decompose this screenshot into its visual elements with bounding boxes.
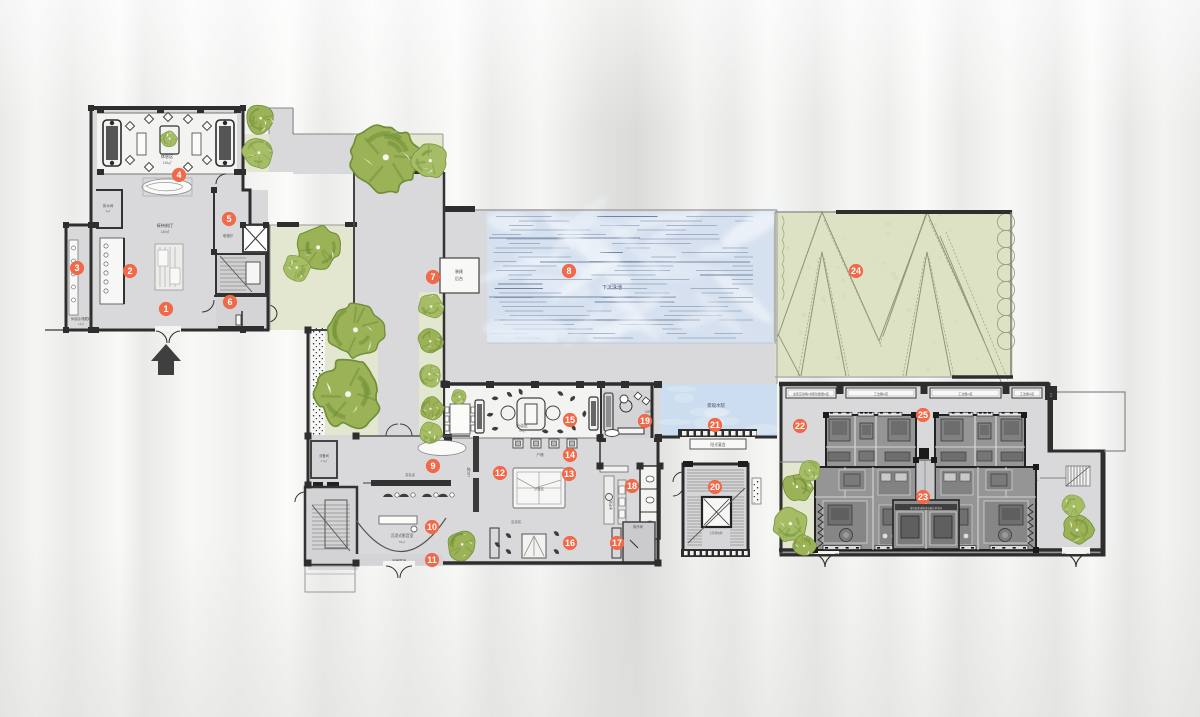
- svg-text:23: 23: [918, 492, 928, 502]
- svg-text:设备间: 设备间: [319, 453, 329, 458]
- svg-text:工: 工: [1050, 394, 1053, 397]
- svg-text:8: 8: [566, 266, 571, 276]
- svg-text:10: 10: [427, 522, 437, 532]
- svg-text:9㎡: 9㎡: [106, 208, 111, 213]
- svg-text:阳光宴会: 阳光宴会: [710, 442, 725, 447]
- svg-text:12: 12: [495, 468, 505, 478]
- svg-text:17: 17: [612, 538, 622, 548]
- svg-text:LED屏: LED屏: [467, 466, 471, 476]
- svg-text:20: 20: [710, 482, 720, 492]
- svg-text:下沉泳池: 下沉泳池: [602, 284, 622, 291]
- svg-text:接待前厅: 接待前厅: [157, 222, 174, 229]
- svg-text:水吧区: 水吧区: [608, 499, 613, 510]
- svg-text:后台: 后台: [455, 275, 463, 281]
- svg-text:宴会桌: 宴会桌: [405, 472, 415, 477]
- svg-text:22: 22: [795, 421, 805, 431]
- svg-text:休息区/储藏间: 休息区/储藏间: [71, 316, 91, 321]
- svg-text:2: 2: [127, 266, 132, 276]
- svg-text:电梯厅: 电梯厅: [223, 233, 234, 238]
- svg-text:3: 3: [74, 263, 79, 273]
- svg-text:9: 9: [430, 461, 435, 471]
- svg-text:24: 24: [851, 266, 861, 276]
- svg-text:1: 1: [163, 304, 168, 314]
- svg-text:4.5㎡: 4.5㎡: [321, 459, 328, 463]
- svg-text:沉浸式影音室: 沉浸式影音室: [391, 533, 414, 538]
- svg-text:洽谈区: 洽谈区: [511, 519, 522, 524]
- svg-text:工法展w区: 工法展w区: [874, 391, 888, 396]
- svg-text:16: 16: [565, 538, 575, 548]
- svg-text:115㎡: 115㎡: [163, 160, 172, 165]
- svg-text:55㎡: 55㎡: [399, 539, 405, 544]
- svg-text:户槽: 户槽: [536, 452, 544, 457]
- svg-text:25: 25: [918, 410, 928, 420]
- svg-text:休息区: 休息区: [161, 153, 174, 160]
- svg-text:7: 7: [430, 272, 435, 282]
- svg-text:无障碍电梯: 无障碍电梯: [710, 531, 723, 535]
- svg-text:工法展w区: 工法展w区: [1020, 391, 1034, 396]
- svg-text:140㎡: 140㎡: [161, 229, 170, 234]
- svg-text:洽谈区: 洽谈区: [516, 422, 528, 428]
- svg-text:室内回游动线/多功能分享空间: 室内回游动线/多功能分享空间: [910, 506, 942, 510]
- svg-text:沙盘区: 沙盘区: [534, 486, 545, 491]
- svg-text:装裱: 装裱: [455, 268, 463, 274]
- svg-text:6: 6: [227, 297, 232, 307]
- svg-text:景观水院: 景观水院: [707, 402, 725, 409]
- svg-text:工法展w区: 工法展w区: [958, 391, 972, 396]
- svg-text:78㎡: 78㎡: [519, 428, 525, 433]
- svg-text:茶水间: 茶水间: [103, 203, 114, 208]
- svg-text:13: 13: [564, 469, 574, 479]
- svg-text:全民互动等/书吧功能展w区: 全民互动等/书吧功能展w区: [793, 391, 829, 396]
- svg-text:21: 21: [710, 420, 720, 430]
- svg-text:19: 19: [640, 416, 650, 426]
- svg-text:操作间: 操作间: [633, 524, 644, 529]
- svg-text:15: 15: [565, 415, 575, 425]
- svg-text:5: 5: [226, 214, 231, 224]
- svg-text:4: 4: [176, 170, 181, 180]
- svg-text:18: 18: [627, 481, 637, 491]
- svg-text:18㎡: 18㎡: [78, 322, 84, 326]
- svg-text:11: 11: [427, 555, 437, 565]
- svg-text:14: 14: [565, 450, 575, 460]
